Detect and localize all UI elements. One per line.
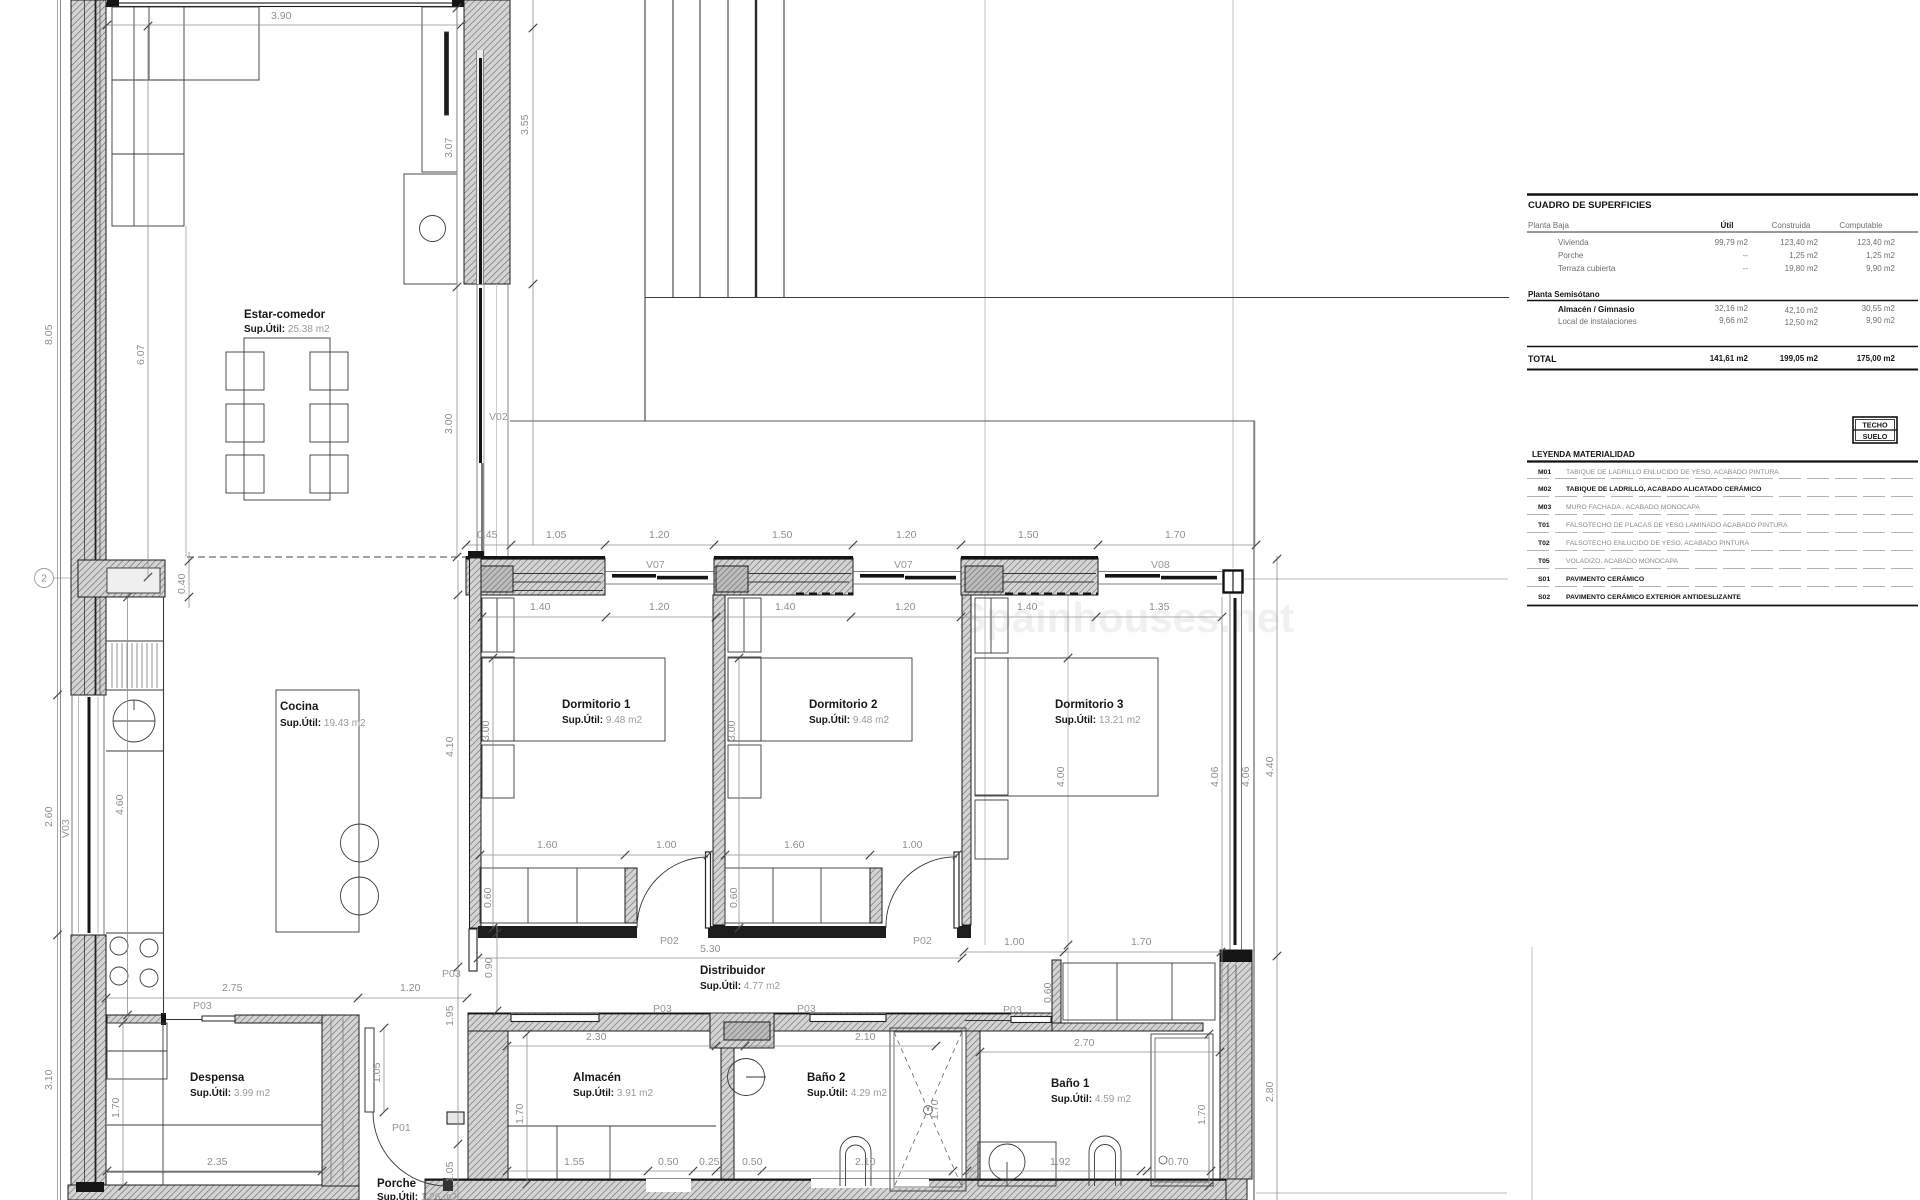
svg-text:V07: V07 xyxy=(646,559,665,571)
svg-text:Sup.Útil: 9.48 m2: Sup.Útil: 9.48 m2 xyxy=(809,713,889,726)
svg-text:Útil: Útil xyxy=(1721,221,1734,230)
svg-text:3.55: 3.55 xyxy=(519,114,531,135)
svg-text:2.75: 2.75 xyxy=(222,982,243,994)
svg-text:0.60: 0.60 xyxy=(728,887,740,908)
svg-text:PAVIMENTO CERÁMICO EXTERIOR AN: PAVIMENTO CERÁMICO EXTERIOR ANTIDESLIZAN… xyxy=(1566,592,1741,601)
svg-text:PAVIMENTO CERÁMICO: PAVIMENTO CERÁMICO xyxy=(1566,574,1644,583)
svg-text:Almacén: Almacén xyxy=(573,1072,621,1084)
svg-text:Vivienda: Vivienda xyxy=(1558,238,1589,247)
svg-text:Porche: Porche xyxy=(1558,251,1584,260)
svg-text:4.40: 4.40 xyxy=(1264,756,1276,777)
svg-text:1.70: 1.70 xyxy=(929,1099,941,1120)
svg-text:1.05: 1.05 xyxy=(444,1161,456,1182)
svg-text:1.70: 1.70 xyxy=(1165,529,1186,541)
svg-text:T05: T05 xyxy=(1538,558,1550,565)
svg-text:Sup.Útil: 13.21 m2: Sup.Útil: 13.21 m2 xyxy=(1055,713,1141,726)
svg-text:32,16 m2: 32,16 m2 xyxy=(1715,304,1749,313)
svg-text:99,79 m2: 99,79 m2 xyxy=(1715,238,1749,247)
svg-text:Sup.Útil: 4.77 m2: Sup.Útil: 4.77 m2 xyxy=(700,979,780,992)
svg-text:2: 2 xyxy=(41,573,47,585)
svg-text:2.70: 2.70 xyxy=(1074,1037,1095,1049)
svg-text:Cocina: Cocina xyxy=(280,701,319,713)
svg-text:Sup.Útil: 1.26 m2: Sup.Útil: 1.26 m2 xyxy=(377,1190,457,1200)
svg-text:Sup.Útil: 25.38 m2: Sup.Útil: 25.38 m2 xyxy=(244,322,330,335)
svg-text:1.50: 1.50 xyxy=(772,529,793,541)
svg-text:1.55: 1.55 xyxy=(564,1156,585,1168)
svg-text:1.05: 1.05 xyxy=(371,1062,383,1083)
svg-text:9,66 m2: 9,66 m2 xyxy=(1719,316,1748,325)
svg-text:141,61 m2: 141,61 m2 xyxy=(1710,354,1749,363)
svg-text:MURO FACHADA , ACABADO MONOCAP: MURO FACHADA , ACABADO MONOCAPA xyxy=(1566,504,1700,511)
svg-text:1.20: 1.20 xyxy=(896,529,917,541)
svg-text:2.10: 2.10 xyxy=(855,1031,876,1043)
svg-text:123,40 m2: 123,40 m2 xyxy=(1857,238,1895,247)
svg-text:1.00: 1.00 xyxy=(902,839,923,851)
svg-text:5.30: 5.30 xyxy=(700,943,721,955)
svg-text:4.00: 4.00 xyxy=(1055,766,1067,787)
svg-text:1.70: 1.70 xyxy=(1196,1104,1208,1125)
svg-text:CUADRO DE SUPERFICIES: CUADRO DE SUPERFICIES xyxy=(1528,200,1652,211)
svg-text:Sup.Útil: 4.29 m2: Sup.Útil: 4.29 m2 xyxy=(807,1086,887,1099)
svg-text:Almacén / Gimnasio: Almacén / Gimnasio xyxy=(1558,305,1635,314)
svg-text:VOLADIZO, ACABADO MONOCAPA: VOLADIZO, ACABADO MONOCAPA xyxy=(1566,558,1679,565)
svg-text:4.06: 4.06 xyxy=(1209,766,1221,787)
svg-text:3.00: 3.00 xyxy=(726,720,738,741)
svg-text:M01: M01 xyxy=(1538,469,1551,476)
svg-text:8.05: 8.05 xyxy=(43,324,55,345)
svg-text:--: -- xyxy=(1743,264,1749,273)
svg-text:2.35: 2.35 xyxy=(207,1156,228,1168)
svg-text:4.06: 4.06 xyxy=(1240,766,1252,787)
svg-text:1.70: 1.70 xyxy=(514,1103,526,1124)
svg-text:2.60: 2.60 xyxy=(43,806,55,827)
svg-text:Sup.Útil: 3.91 m2: Sup.Útil: 3.91 m2 xyxy=(573,1086,653,1099)
svg-text:M02: M02 xyxy=(1538,486,1551,493)
svg-text:9,90 m2: 9,90 m2 xyxy=(1866,316,1895,325)
svg-text:1.20: 1.20 xyxy=(649,601,670,613)
svg-text:Planta Baja: Planta Baja xyxy=(1528,221,1569,230)
svg-text:1.00: 1.00 xyxy=(1004,936,1025,948)
svg-text:P03: P03 xyxy=(193,1000,212,1012)
svg-text:1.05: 1.05 xyxy=(546,529,567,541)
svg-text:Local de instalaciones: Local de instalaciones xyxy=(1558,317,1637,326)
svg-text:19,80 m2: 19,80 m2 xyxy=(1785,264,1819,273)
svg-text:Dormitorio 3: Dormitorio 3 xyxy=(1055,699,1123,711)
svg-text:0.70: 0.70 xyxy=(1168,1156,1189,1168)
svg-text:1.70: 1.70 xyxy=(1131,936,1152,948)
svg-text:2.30: 2.30 xyxy=(586,1031,607,1043)
svg-text:0.25: 0.25 xyxy=(699,1156,720,1168)
svg-text:3.00: 3.00 xyxy=(480,720,492,741)
svg-text:6.07: 6.07 xyxy=(135,344,147,365)
svg-text:9,90 m2: 9,90 m2 xyxy=(1866,264,1895,273)
svg-text:Baño 2: Baño 2 xyxy=(807,1072,845,1084)
svg-text:1.00: 1.00 xyxy=(656,839,677,851)
svg-text:3.90: 3.90 xyxy=(271,10,292,22)
svg-text:1,25 m2: 1,25 m2 xyxy=(1866,251,1895,260)
svg-text:2.80: 2.80 xyxy=(1264,1081,1276,1102)
svg-text:V07: V07 xyxy=(894,559,913,571)
svg-text:1.40: 1.40 xyxy=(530,601,551,613)
svg-text:P02: P02 xyxy=(913,935,932,947)
svg-text:4.10: 4.10 xyxy=(444,736,456,757)
svg-text:P03: P03 xyxy=(1003,1004,1022,1016)
svg-text:1.92: 1.92 xyxy=(1050,1156,1071,1168)
svg-text:TECHO: TECHO xyxy=(1862,421,1888,430)
svg-text:P02: P02 xyxy=(660,935,679,947)
svg-text:0.45: 0.45 xyxy=(477,529,498,541)
svg-text:1.35: 1.35 xyxy=(1149,601,1170,613)
svg-text:Despensa: Despensa xyxy=(190,1072,245,1084)
svg-text:3.10: 3.10 xyxy=(43,1069,55,1090)
svg-text:12,50 m2: 12,50 m2 xyxy=(1785,318,1819,327)
svg-text:V02: V02 xyxy=(489,411,508,423)
svg-text:0.90: 0.90 xyxy=(483,957,495,978)
svg-text:M03: M03 xyxy=(1538,504,1551,511)
svg-text:199,05 m2: 199,05 m2 xyxy=(1780,354,1819,363)
svg-text:Porche: Porche xyxy=(377,1178,416,1190)
svg-text:1,25 m2: 1,25 m2 xyxy=(1789,251,1818,260)
svg-text:Construida: Construida xyxy=(1772,221,1811,230)
svg-text:3.07: 3.07 xyxy=(443,137,455,158)
svg-text:--: -- xyxy=(1743,251,1749,260)
svg-text:4.60: 4.60 xyxy=(114,794,126,815)
svg-text:P03: P03 xyxy=(653,1003,672,1015)
svg-text:TOTAL: TOTAL xyxy=(1528,354,1557,364)
svg-text:Computable: Computable xyxy=(1839,221,1883,230)
svg-text:1.20: 1.20 xyxy=(400,982,421,994)
svg-text:T01: T01 xyxy=(1538,522,1550,529)
svg-text:0.60: 0.60 xyxy=(1042,982,1054,1003)
svg-text:V03: V03 xyxy=(60,819,72,838)
svg-text:1.20: 1.20 xyxy=(895,601,916,613)
svg-text:Dormitorio 1: Dormitorio 1 xyxy=(562,699,631,711)
svg-text:Terraza cubierta: Terraza cubierta xyxy=(1558,264,1616,273)
svg-text:1.40: 1.40 xyxy=(775,601,796,613)
svg-text:1.50: 1.50 xyxy=(1018,529,1039,541)
svg-text:1.20: 1.20 xyxy=(649,529,670,541)
svg-text:3.00: 3.00 xyxy=(443,413,455,434)
svg-text:FALSOTECHO DE PLACAS DE YESO L: FALSOTECHO DE PLACAS DE YESO LAMINADO AC… xyxy=(1566,522,1788,529)
svg-text:1.95: 1.95 xyxy=(444,1005,456,1026)
svg-text:Sup.Útil: 4.59 m2: Sup.Útil: 4.59 m2 xyxy=(1051,1092,1131,1105)
svg-text:0.50: 0.50 xyxy=(658,1156,679,1168)
svg-text:P03: P03 xyxy=(442,968,461,980)
svg-text:0.40: 0.40 xyxy=(176,573,188,594)
svg-text:P01: P01 xyxy=(392,1122,411,1134)
svg-text:0.60: 0.60 xyxy=(482,887,494,908)
svg-text:V08: V08 xyxy=(1151,559,1170,571)
svg-text:S02: S02 xyxy=(1538,594,1550,601)
svg-text:Distribuidor: Distribuidor xyxy=(700,965,766,977)
svg-text:42,10 m2: 42,10 m2 xyxy=(1785,306,1819,315)
svg-text:1.70: 1.70 xyxy=(110,1097,122,1118)
svg-text:2.10: 2.10 xyxy=(855,1156,876,1168)
svg-text:30,55 m2: 30,55 m2 xyxy=(1862,304,1896,313)
svg-text:Sup.Útil: 3.99 m2: Sup.Útil: 3.99 m2 xyxy=(190,1086,270,1099)
svg-text:Sup.Útil: 19.43 m2: Sup.Útil: 19.43 m2 xyxy=(280,716,366,729)
svg-text:Sup.Útil: 9.48 m2: Sup.Útil: 9.48 m2 xyxy=(562,713,642,726)
svg-text:Baño 1: Baño 1 xyxy=(1051,1078,1090,1090)
svg-text:S01: S01 xyxy=(1538,576,1550,583)
svg-text:TABIQUE DE LADRILLO, ACABADO A: TABIQUE DE LADRILLO, ACABADO ALICATADO C… xyxy=(1566,484,1761,493)
svg-text:SUELO: SUELO xyxy=(1863,432,1888,441)
svg-text:P03: P03 xyxy=(797,1003,816,1015)
svg-text:1.60: 1.60 xyxy=(784,839,805,851)
svg-text:175,00 m2: 175,00 m2 xyxy=(1857,354,1896,363)
svg-text:FALSOTECHO ENLUCIDO DE YESO, A: FALSOTECHO ENLUCIDO DE YESO, ACABADO PIN… xyxy=(1566,540,1750,547)
svg-text:T02: T02 xyxy=(1538,540,1550,547)
svg-text:LEYENDA MATERIALIDAD: LEYENDA MATERIALIDAD xyxy=(1532,450,1635,459)
svg-text:123,40 m2: 123,40 m2 xyxy=(1780,238,1818,247)
svg-text:TABIQUE DE LADRILLO ENLUCIDO D: TABIQUE DE LADRILLO ENLUCIDO DE YESO, AC… xyxy=(1566,469,1779,476)
svg-text:0.50: 0.50 xyxy=(742,1156,763,1168)
svg-text:Estar-comedor: Estar-comedor xyxy=(244,309,326,321)
svg-text:1.40: 1.40 xyxy=(1017,601,1038,613)
svg-text:1.60: 1.60 xyxy=(537,839,558,851)
svg-text:Dormitorio 2: Dormitorio 2 xyxy=(809,699,877,711)
svg-text:Planta Semisótano: Planta Semisótano xyxy=(1528,290,1600,299)
